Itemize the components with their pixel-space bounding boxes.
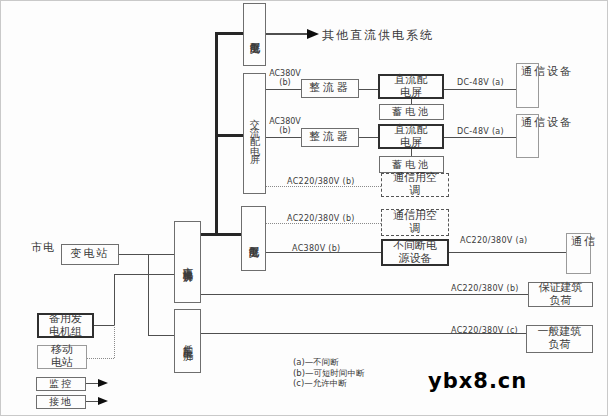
connector-drop-to-lv-panel (148, 335, 174, 336)
node-ac-panel-mid: 交流配电屏 (243, 73, 266, 194)
label-other-dc-system: 其他直流供电系统 (322, 27, 434, 44)
connector-ac2-to-rectifier2 (266, 137, 301, 138)
edge-label-ac380v-1: AC380V (b) (267, 69, 303, 87)
connector-rectifier1-to-dcpanel1 (359, 89, 378, 90)
node-mobile-station: 移动电站 (37, 345, 87, 369)
node-dc-panel-2: 直流配电屏 (378, 124, 444, 149)
connector-other-dc-line (266, 33, 308, 35)
label-mains: 市电 (31, 240, 55, 255)
connector-dcpanel1-to-commequip1 (444, 89, 516, 90)
legend-item-a: (a)—不间断 (293, 357, 365, 368)
node-lv-panel: 低压配电屏 (174, 309, 201, 373)
node-comm-equipment-2: 通信设备 (516, 114, 539, 158)
node-ac-panel-top: 交流配电屏 (243, 3, 266, 66)
connector-generator-out (94, 325, 114, 326)
connector-monitoring (86, 383, 98, 384)
connector-dcpanel2-to-battery2 (411, 149, 412, 156)
legend-item-c: (c)—允许中断 (293, 378, 365, 389)
connector-grounding (86, 401, 98, 402)
connector-transfer-to-guaranteed-load (201, 294, 528, 295)
node-grounding: 接地 (36, 395, 86, 409)
edge-label-ac220b-3: AC220/380V (b) (451, 284, 519, 293)
node-substation: 变电站 (61, 244, 119, 265)
connector-transfer-to-bus (201, 233, 241, 236)
connector-ac2-to-rectifier1 (266, 89, 301, 90)
edge-label-ac380v-b-3: AC380V (b) (292, 244, 341, 253)
edge-label-ac220b-2: AC220/380V (b) (287, 214, 355, 223)
node-general-load: 一般建筑负荷 (526, 325, 593, 353)
legend-item-b: (b)—可短时间中断 (293, 368, 365, 379)
arrowhead-other-dc (307, 29, 319, 39)
edge-label-dc48v-2: DC-48V (a) (457, 127, 504, 136)
arrowhead-monitoring (98, 379, 108, 387)
connector-substation-drop (148, 254, 149, 335)
power-supply-diagram: 其他直流供电系统 市电 变电站 市电油机转换屏 低压配电屏 备用发电机组 移动电… (0, 0, 608, 416)
node-comm-equipment-1-label: 通信设备 (521, 66, 573, 79)
edge-label-dc48v-1: DC-48V (a) (457, 78, 504, 87)
node-rectifier-2: 整流器 (301, 128, 359, 147)
connector-dcpanel2-to-commequip2 (444, 137, 516, 138)
node-comm-label: 通信 (571, 236, 597, 249)
node-guaranteed-load: 保证建筑负荷 (528, 282, 593, 307)
node-comm-aircon-1: 通信用空调 (381, 173, 449, 197)
legend: (a)—不间断 (b)—可短时间中断 (c)—允许中断 (293, 357, 365, 389)
edge-label-ac220a: AC220/380V (a) (460, 236, 528, 245)
node-dc-panel-1: 直流配电屏 (378, 74, 444, 99)
node-comm-aircon-2: 通信用空调 (381, 209, 449, 236)
connector-ac3-to-aircon2-dotted (266, 223, 381, 224)
edge-label-ac380v-2: AC380V (b) (267, 117, 303, 135)
node-comm: 通信 (566, 233, 591, 274)
connector-mobile-riser-dotted (114, 325, 115, 358)
node-battery-1: 蓄电池 (379, 104, 444, 120)
connector-riser-to-transfer (114, 274, 174, 275)
node-monitoring: 监控 (36, 377, 86, 391)
connector-bus-to-ac-panel-top (215, 32, 243, 35)
connector-ac2-to-aircon1-dotted (266, 186, 381, 187)
node-comm-equipment-2-label: 通信设备 (521, 117, 573, 130)
arrowhead-grounding (98, 397, 108, 405)
node-transfer-panel: 市电油机转换屏 (174, 221, 201, 303)
connector-generator-riser (114, 274, 115, 325)
connector-ups-to-comm (449, 252, 566, 253)
edge-label-ac220b-1: AC220/380V (b) (287, 177, 355, 186)
edge-label-ac220c: AC220/380V (c) (451, 326, 518, 335)
connector-bus-to-ac-panel-mid (215, 134, 243, 137)
node-backup-generator: 备用发电机组 (37, 313, 94, 338)
connector-mobile-station-dotted (87, 358, 114, 359)
watermark: ybx8.cn (428, 369, 527, 393)
node-ups: 不间断电源设备 (381, 239, 449, 266)
connector-rectifier2-to-dcpanel2 (359, 137, 378, 138)
node-comm-equipment-1: 通信设备 (516, 63, 539, 108)
node-rectifier-1: 整流器 (301, 79, 359, 98)
connector-substation-to-transfer (119, 254, 174, 255)
node-ac-panel-bottom: 交流配电屏 (241, 206, 266, 271)
